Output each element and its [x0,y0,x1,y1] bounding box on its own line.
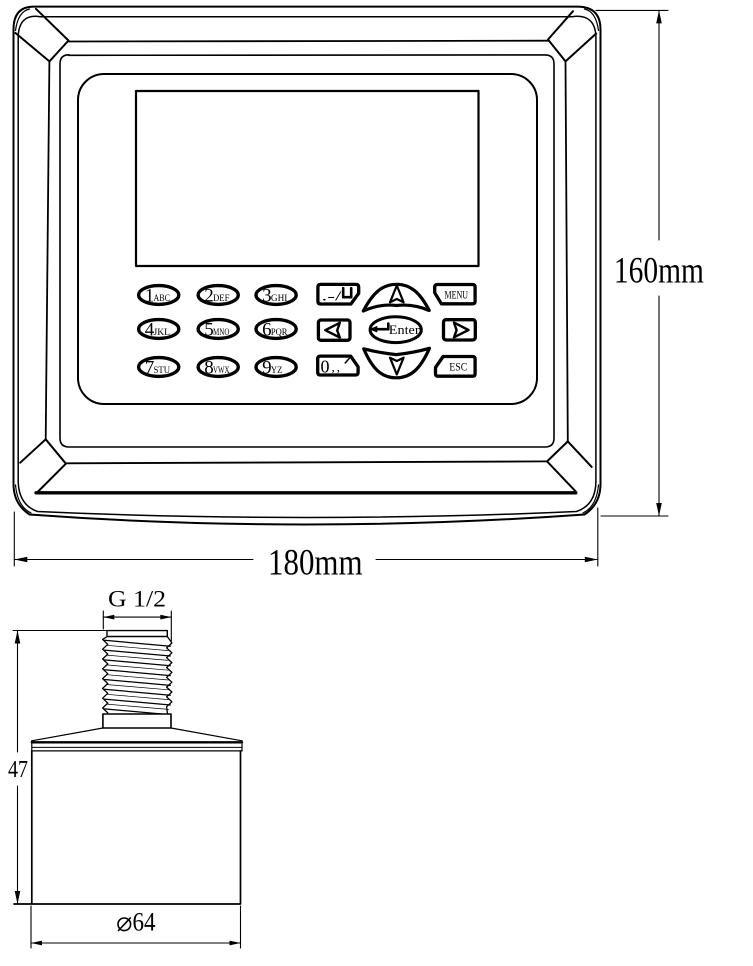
svg-text:MNO: MNO [213,327,230,338]
svg-text:47: 47 [8,757,28,783]
svg-text:Enter: Enter [389,322,421,337]
svg-text:ESC: ESC [449,361,467,373]
svg-text:,,: ,, [332,359,343,374]
svg-text:YZ: YZ [271,365,283,376]
svg-text:VWX: VWX [213,365,230,376]
svg-text:PQR: PQR [271,327,288,338]
svg-text:.-/: .-/ [322,289,342,304]
svg-text:DEF: DEF [213,293,230,304]
svg-text:ABC: ABC [154,293,171,304]
svg-text:64: 64 [133,908,156,937]
svg-text:G 1/2: G 1/2 [108,587,166,612]
svg-text:STU: STU [154,365,171,376]
svg-text:180mm: 180mm [268,543,363,584]
svg-text:MENU: MENU [445,290,469,302]
svg-text:JKL: JKL [154,327,171,338]
svg-text:0: 0 [321,356,330,376]
svg-text:160mm: 160mm [614,251,704,292]
svg-text:GHI: GHI [271,293,288,304]
